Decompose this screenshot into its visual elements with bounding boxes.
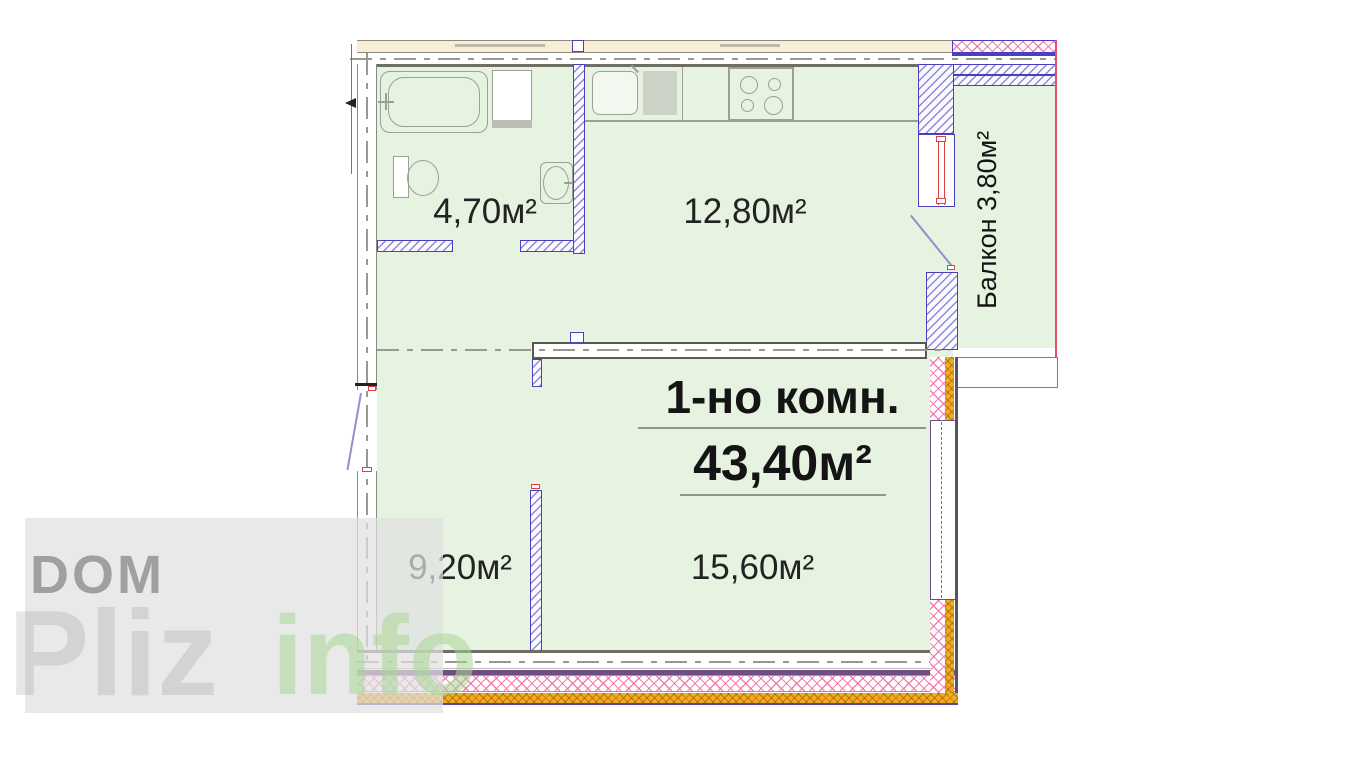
living-area-label: 15,60м² <box>660 548 845 588</box>
washing-machine-panel <box>492 120 532 128</box>
title-divider-2 <box>680 494 886 496</box>
bathroom-area-label: 4,70м² <box>405 192 565 232</box>
bathroom-wall-right-segment <box>520 240 575 252</box>
balcony-window-frame-line-1 <box>938 136 939 205</box>
hall-partition-tick <box>531 484 540 489</box>
top-wall-mark-1 <box>455 44 545 47</box>
kitchen-counter-divider <box>682 67 683 120</box>
balcony-door-tick <box>947 265 955 270</box>
right-wall-hatch-lower <box>930 600 945 693</box>
top-axis-dashed-line <box>350 58 1056 60</box>
balcony-slab-outline <box>955 357 1058 388</box>
stove-burner-3 <box>741 99 754 112</box>
top-wall-mark-2 <box>720 44 780 47</box>
mid-partition-notch <box>570 332 584 343</box>
balcony-area-label: Балкон 3,80м² <box>972 95 1027 345</box>
bathtub-faucet-icon-v <box>385 93 387 110</box>
floorplan-canvas: Балкон 3,80м² 4,70м² 12,80м² 9,20м² 15,6… <box>0 0 1360 765</box>
watermark-info-text: info <box>272 600 477 712</box>
stove-burner-2 <box>768 78 781 91</box>
right-wall-outer-line <box>955 357 958 693</box>
top-outer-wall-band <box>357 40 952 53</box>
top-balcony-wall-line <box>952 53 1057 56</box>
top-wall-axis-tick <box>572 40 584 52</box>
right-wall-orange-lower <box>945 600 954 693</box>
bathroom-wall-left-segment <box>377 240 453 252</box>
balcony-window-tick-top <box>936 136 946 142</box>
title-divider-1 <box>638 427 926 429</box>
kitchen-drainer <box>643 71 677 115</box>
balcony-right-edge-line <box>1055 40 1057 360</box>
living-window-frame-line <box>941 422 942 598</box>
left-opening-tick-bottom <box>362 467 372 472</box>
left-opening-tick-top <box>368 386 376 391</box>
top-interior-wall-line <box>357 64 952 67</box>
kitchen-right-pilaster <box>918 64 954 134</box>
bathtub-inner <box>388 77 480 127</box>
kitchen-right-wall-lower <box>926 272 958 350</box>
stove-icon <box>728 67 794 121</box>
watermark-pliz-text: Pliz <box>8 592 218 714</box>
balcony-window-frame-line-2 <box>944 136 945 205</box>
balcony-window-tick-bottom <box>936 198 946 204</box>
kitchen-sink-icon <box>592 71 638 115</box>
entrance-door-swing-line <box>346 393 361 470</box>
stove-burner-4 <box>764 96 783 115</box>
balcony-top-wall-midline <box>953 74 1057 76</box>
hall-partition-upper-stub <box>532 359 542 387</box>
toilet-bowl-icon <box>407 160 439 196</box>
apartment-total-area: 43,40м² <box>640 434 925 492</box>
mid-axis-dashed-line <box>377 349 950 351</box>
stove-burner-1 <box>740 76 758 94</box>
bathroom-kitchen-partition <box>573 64 585 254</box>
living-window <box>930 420 956 600</box>
right-wall-orange-upper <box>945 357 954 420</box>
top-balcony-wall-hatch <box>952 40 1057 53</box>
dimension-line <box>351 44 352 174</box>
balcony-window-block <box>918 134 955 207</box>
kitchen-area-label: 12,80м² <box>655 192 835 232</box>
apartment-type-title: 1-но комн. <box>620 370 945 424</box>
dimension-arrow-icon <box>345 98 356 108</box>
